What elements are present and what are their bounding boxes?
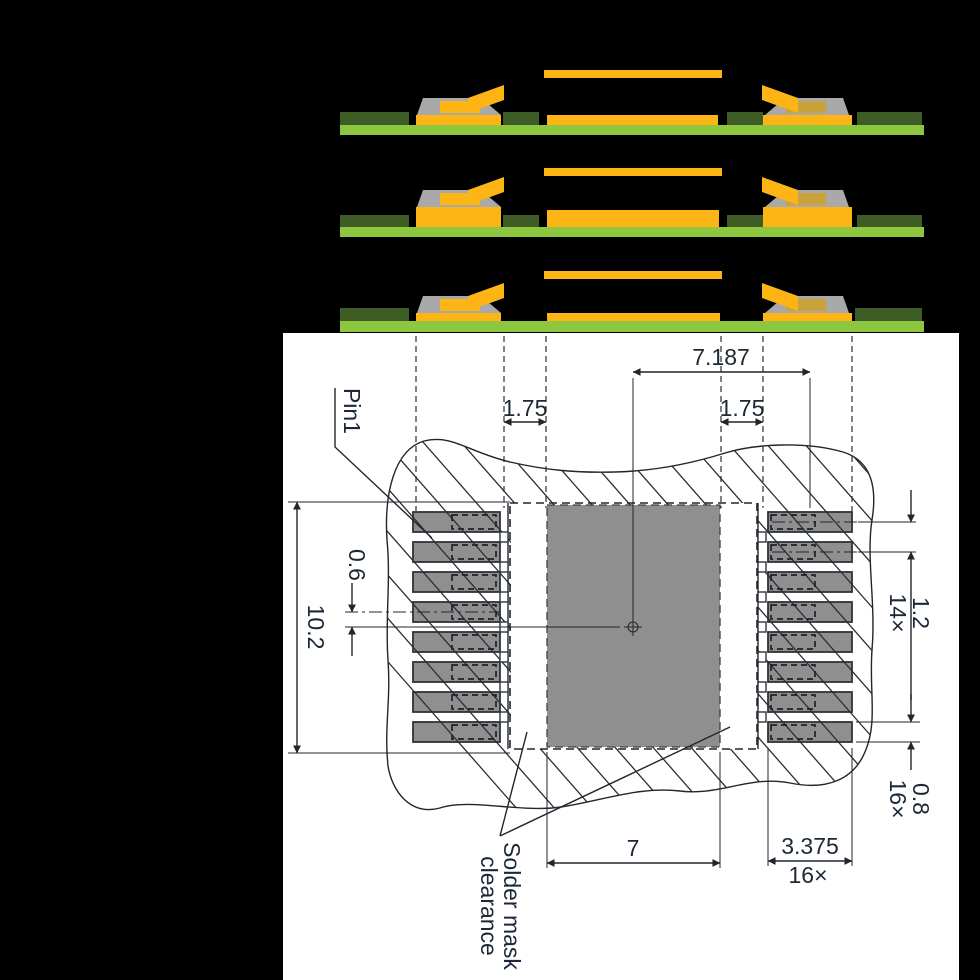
solder-mask-segment [855, 308, 922, 321]
copper-pad [416, 115, 501, 125]
dimension-175-right: 1.75 [720, 395, 765, 422]
dim-text: 10.2 [303, 605, 329, 650]
dim-count: 14× [885, 593, 911, 632]
copper-pad [416, 207, 501, 227]
dim-count: 16× [885, 779, 911, 818]
copper-pad [763, 207, 852, 227]
thermal-pad-copper [547, 313, 720, 321]
pin1-label: Pin1 [339, 388, 365, 434]
pcb-board [340, 125, 924, 135]
solder-mask-segment [340, 215, 409, 227]
component-thermal-pad [544, 168, 722, 176]
copper-pad [416, 313, 501, 321]
dim-text: 7 [627, 835, 640, 861]
copper-pad [763, 313, 852, 321]
solder-mask-segment [340, 112, 409, 125]
solder-mask-segment [727, 112, 763, 125]
thermal-pad-copper [547, 115, 718, 125]
dim-text: 1.75 [503, 395, 548, 421]
solder-mask-segment [727, 215, 763, 227]
dim-text: 1.75 [720, 395, 765, 421]
thermal-pad-copper [547, 210, 719, 227]
dim-text: 7.187 [692, 344, 750, 370]
solder-mask-segment [340, 308, 409, 321]
cross-section-1 [340, 70, 924, 135]
solder-mask-segment [503, 215, 539, 227]
copper-pad [763, 115, 852, 125]
figure-svg: 7.187 1.75 1.75 10.2 0.6 1.2 14× [0, 0, 980, 980]
solder-mask-clearance-label-line2: clearance [476, 856, 502, 956]
dimension-175-left: 1.75 [503, 395, 548, 422]
cross-section-3 [340, 271, 924, 332]
land-pattern-drawing: 7.187 1.75 1.75 10.2 0.6 1.2 14× [180, 333, 980, 980]
solder-mask-segment [857, 112, 922, 125]
dim-count: 16× [788, 862, 827, 888]
land-pattern-figure: 7.187 1.75 1.75 10.2 0.6 1.2 14× [0, 0, 980, 980]
pcb-board [340, 227, 924, 237]
component-thermal-pad [544, 70, 722, 78]
dim-text: 0.6 [344, 549, 370, 581]
cross-section-2 [340, 168, 924, 237]
pcb-board [340, 321, 924, 332]
dim-text: 3.375 [781, 833, 839, 859]
solder-mask-segment [503, 112, 539, 125]
component-thermal-pad [544, 271, 722, 279]
solder-mask-segment [857, 215, 922, 227]
